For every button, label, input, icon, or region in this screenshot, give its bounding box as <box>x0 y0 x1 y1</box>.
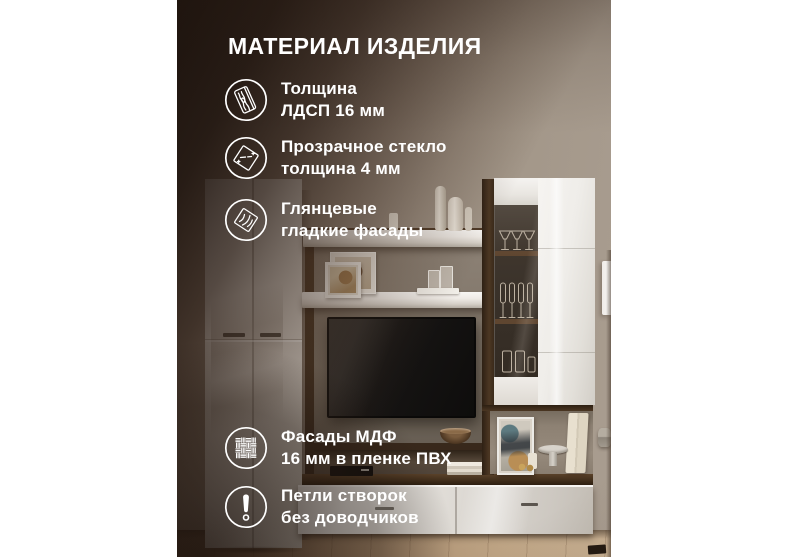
feature-line: Прозрачное стекло <box>281 136 447 158</box>
feature-mdf-facades: Фасады МДФ 16 мм в пленке ПВХ <box>224 426 452 470</box>
feature-glass: Прозрачное стекло толщина 4 мм <box>224 136 447 180</box>
feature-text: Прозрачное стекло толщина 4 мм <box>281 136 447 180</box>
feature-line: Глянцевые <box>281 198 423 220</box>
feature-line: толщина 4 мм <box>281 158 447 180</box>
page-title: МАТЕРИАЛ ИЗДЕЛИЯ <box>228 33 482 60</box>
feature-line: Петли створок <box>281 485 419 507</box>
feature-text: Фасады МДФ 16 мм в пленке ПВХ <box>281 426 452 470</box>
mdf-weave-icon <box>224 426 268 470</box>
feature-line: 16 мм в пленке ПВХ <box>281 448 452 470</box>
feature-line: без доводчиков <box>281 507 419 529</box>
feature-glossy-facades: Глянцевые гладкие фасады <box>224 198 423 242</box>
feature-chipboard: Толщина ЛДСП 16 мм <box>224 78 385 122</box>
product-info-card: МАТЕРИАЛ ИЗДЕЛИЯ Толщина ЛДСП 16 мм <box>177 0 611 557</box>
glossy-facade-icon <box>224 198 268 242</box>
glass-pane-icon <box>224 136 268 180</box>
card-content: МАТЕРИАЛ ИЗДЕЛИЯ Толщина ЛДСП 16 мм <box>177 0 611 557</box>
feature-text: Толщина ЛДСП 16 мм <box>281 78 385 122</box>
feature-text: Петли створок без доводчиков <box>281 485 419 529</box>
feature-line: Фасады МДФ <box>281 426 452 448</box>
warning-icon <box>224 485 268 529</box>
chipboard-plank-icon <box>224 78 268 122</box>
feature-hinges: Петли створок без доводчиков <box>224 485 419 529</box>
feature-line: ЛДСП 16 мм <box>281 100 385 122</box>
feature-line: Толщина <box>281 78 385 100</box>
feature-text: Глянцевые гладкие фасады <box>281 198 423 242</box>
feature-line: гладкие фасады <box>281 220 423 242</box>
